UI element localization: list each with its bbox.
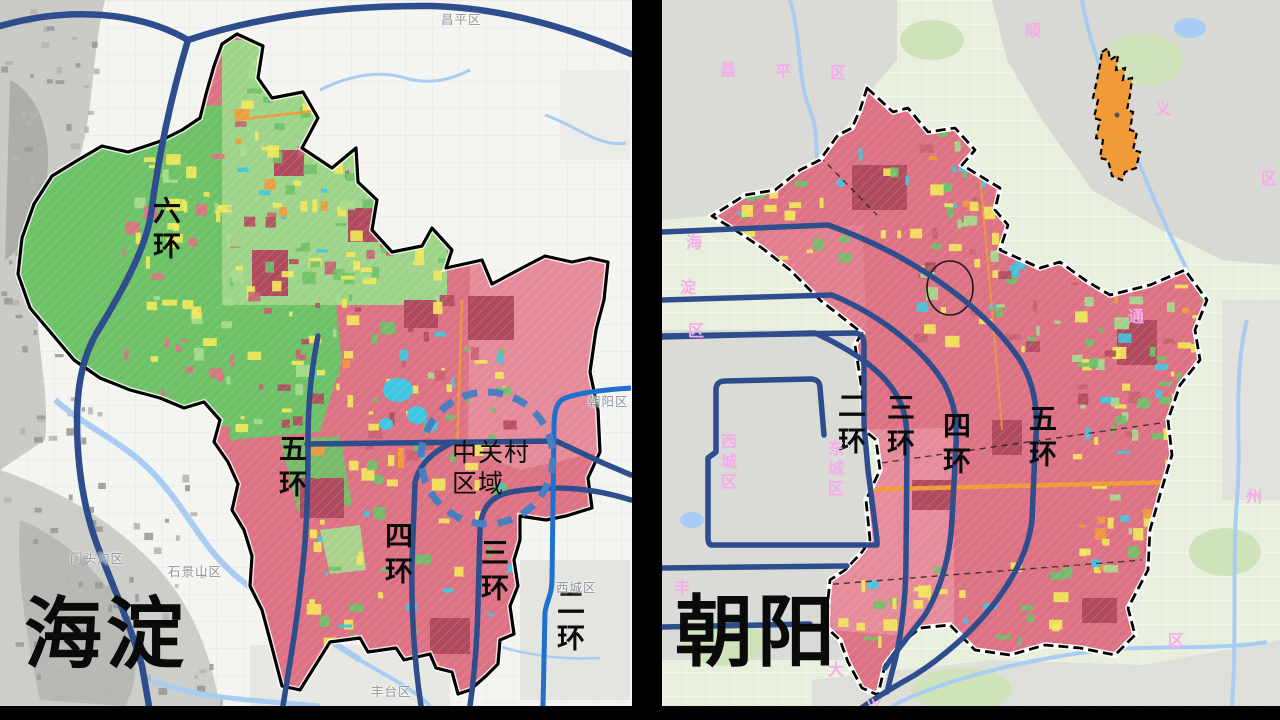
chaoyang-title: 朝阳: [675, 594, 839, 672]
chaoyang-map-panel: 二环三环四环五环昌平区顺义区海淀区西城区东城区丰大兴通州区 朝阳: [662, 0, 1280, 706]
bottom-bar: [0, 706, 1280, 720]
haidian-map-panel: 六环五环四环三环二环昌平区朝阳区门头沟区石景山区西城区丰台区 中关村 区域 海淀: [0, 0, 632, 706]
panel-divider: [632, 0, 662, 720]
haidian-title: 海淀: [24, 596, 188, 674]
comparison-slide: 六环五环四环三环二环昌平区朝阳区门头沟区石景山区西城区丰台区 中关村 区域 海淀: [0, 0, 1280, 720]
